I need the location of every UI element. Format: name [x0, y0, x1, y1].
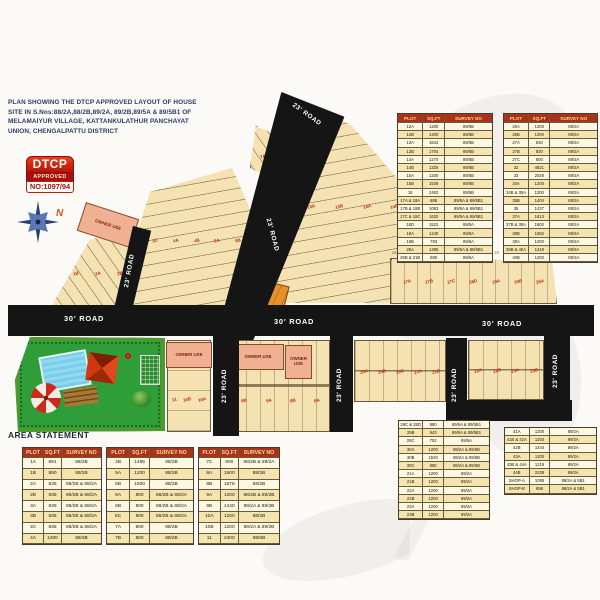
table-cell: 2238 [530, 469, 551, 477]
plot-number: 10A [198, 396, 207, 403]
table-cell: 13B [398, 148, 423, 156]
table-cell: 4821 [529, 164, 550, 172]
table-cell: 3B [23, 512, 44, 523]
table-cell: 800 [130, 490, 150, 501]
plot-number: 19A [491, 278, 500, 285]
column-header-plot: PLOT [107, 448, 130, 458]
table-cell: 800 [130, 512, 150, 523]
table-cell: 5B [107, 480, 130, 491]
table-cell: 88/2B [150, 523, 193, 534]
table-row: 1B89088/2B [23, 469, 101, 480]
table-cell: 838 [44, 523, 62, 534]
table-cell: 40B [504, 254, 529, 262]
table-cell: 1200 [423, 511, 444, 519]
table-cell: 1200 [529, 238, 550, 246]
table-row: 21B120089/2A [399, 478, 489, 486]
parasol-umbrella [31, 383, 61, 413]
table-cell: 89/2A [550, 139, 597, 147]
table-cell: 880 [423, 462, 444, 470]
table-row: 34A120089/2A [504, 180, 597, 188]
table-cell: 88/2B [62, 469, 101, 480]
table-cell: SHOP-B [505, 485, 530, 493]
garden-bush [132, 391, 151, 407]
table-cell: 1440 [221, 501, 239, 512]
park-benches [63, 386, 99, 408]
table-row: 2B83888/2B & 88/2A [23, 490, 101, 501]
table-cell: 89/5A [445, 254, 492, 262]
table-cell: 1200 [221, 490, 239, 501]
owner-use-plot-2: OWNER USE [166, 342, 212, 368]
table-header: PLOT SQ.FT SURVEY NO [398, 114, 492, 123]
table-cell: 89/5A [445, 238, 492, 246]
table-cell: 89/5A & 89/5B1 [445, 246, 492, 254]
title-line: SITE IN S.Nos:88/2A,88/2B,89/2A, 89/2B,8… [8, 108, 233, 118]
table-cell: 41B & 42A [505, 436, 530, 444]
table-row: 12B120089/5B [398, 131, 492, 139]
table-row: 19B78389/5A [398, 238, 492, 246]
plot-number: 1A [51, 270, 58, 276]
table-cell: 89/2A & 89/5B [444, 462, 489, 470]
table-row: 44B223889/2A [505, 469, 596, 477]
plot-block-south-4: 22A22B23A23B [468, 340, 544, 400]
table-cell: 89/2A & 89/2B [239, 501, 279, 512]
table-row: 27B83089/2A [504, 148, 597, 156]
table-cell: 14B [398, 164, 423, 172]
table-row: 4B148588/2B [107, 458, 193, 469]
dtcp-approved-badge: DTCP APPROVED NO:1097/94 [26, 156, 74, 193]
table-cell: 14A [398, 156, 423, 164]
table-cell: 1085 [530, 477, 551, 485]
table-cell: 39A [504, 238, 529, 246]
plot-number: 14A [362, 203, 371, 210]
table-cell: 1644 [423, 139, 445, 147]
owner-use-plot-3: OWNER USE [232, 344, 284, 370]
table-cell: 12B [398, 131, 423, 139]
plot-number: 22B [492, 367, 501, 374]
table-row: 22A120089/2A [399, 487, 489, 495]
table-cell: 23A [399, 503, 423, 511]
table-cell: 7B [107, 534, 130, 545]
plot-number: 20A [359, 368, 368, 375]
table-cell: 88/2B [239, 480, 279, 491]
table-cell: 1200 [423, 446, 444, 454]
table-cell: 1200 [423, 470, 444, 478]
table-cell: 25A [398, 246, 423, 254]
column-header-plot: PLOT [23, 448, 44, 458]
table-cell: 838 [44, 501, 62, 512]
table-cell: 37A [504, 213, 529, 221]
table-body: 28C & 28D88089/5A & 89/5B129B94389/5A & … [399, 421, 489, 519]
table-cell: 26A [504, 123, 529, 131]
table-row: 4A120088/2B [23, 534, 101, 545]
column-header-plot: PLOT [199, 448, 221, 458]
table-header: PLOT SQ.FT SURVEY NO [23, 448, 101, 458]
table-cell: 88/2B & 88/2A [150, 501, 193, 512]
table-row: 30B152089/2A & 89/5B [399, 454, 489, 462]
table-row: 1A89188/2B [23, 458, 101, 469]
plot-number: 8B [289, 397, 296, 403]
table-row: 8A150088/2B [199, 469, 279, 480]
table-cell: 89/5A & 89/5B1 [445, 213, 492, 221]
table-cell: 27A [504, 139, 529, 147]
table-row: 41A120089/2A [505, 428, 596, 436]
table-cell: 943 [423, 429, 444, 437]
column-header-sqft: SQ.FT [529, 114, 550, 123]
table-row: 26A120089/2A [504, 123, 597, 131]
table-cell: 898 [530, 485, 551, 493]
table-row: 37B & 38A160089/2A [504, 221, 597, 229]
table-cell: 1200 [529, 254, 550, 262]
plot-table-bottom-1: PLOT SQ.FT SURVEY NO 1A89188/2B1B89088/2… [22, 447, 102, 545]
table-cell: 12A [398, 123, 423, 131]
table-cell: 88/2B [150, 534, 193, 545]
column-header-survey: SURVEY NO [62, 448, 101, 458]
table-cell: 17A & 18A [398, 197, 423, 205]
table-cell: 36 [504, 205, 529, 213]
table-cell: 1500 [221, 469, 239, 480]
table-row: 7C80088/2B & 88/2A [199, 458, 279, 469]
table-row: 8B167888/2B [199, 480, 279, 491]
plot-number: 4B [193, 237, 200, 243]
table-cell: 89/2A & 89/5B [444, 446, 489, 454]
table-body: 1A89188/2B1B89088/2B2A83888/2B & 88/2A2B… [23, 458, 101, 544]
table-cell: 1385 [423, 246, 445, 254]
table-row: 43B & 44A121989/2A [505, 461, 596, 469]
table-cell: 3A [23, 501, 44, 512]
plot-number: 9B [241, 397, 248, 403]
table-cell: 30C [399, 462, 423, 470]
table-row: 12A120089/5B [398, 123, 492, 131]
table-cell: 89/2A [550, 172, 597, 180]
plot-number: 9A [265, 397, 272, 403]
table-cell: 89/2A [550, 164, 597, 172]
table-cell: 89/2A [550, 453, 596, 461]
road-label-23-v3: 23' ROAD [451, 340, 461, 430]
table-cell: 1200 [221, 523, 239, 534]
plot-number: 8A [314, 397, 321, 403]
plot-number: 25A [535, 278, 544, 285]
table-cell: 1485 [130, 458, 150, 469]
table-row: 6B80088/2B & 88/2A [107, 501, 193, 512]
table-cell: 1404 [529, 197, 550, 205]
table-cell: 8B [199, 480, 221, 491]
plot-number: 2A [95, 270, 102, 276]
table-cell: 6C [107, 512, 130, 523]
table-cell: 89/5B [445, 131, 492, 139]
table-cell: 88/2B & 88/2A [62, 512, 101, 523]
table-row: 17A & 18A88589/5A & 89/5B1 [398, 197, 492, 205]
table-cell: 1620 [423, 213, 445, 221]
table-cell: 880 [423, 421, 444, 429]
table-cell: 10A [199, 512, 221, 523]
table-body: 12A120089/5B12B120089/5B13A164489/5B13B1… [398, 123, 492, 262]
table-cell: 800 [130, 523, 150, 534]
road-label-23-v4: 23' ROAD [552, 326, 562, 416]
table-cell: 838 [44, 512, 62, 523]
table-cell: 44B [505, 469, 530, 477]
table-cell: 1325 [423, 164, 445, 172]
plan-title: PLAN SHOWING THE DTCP APPROVED LAYOUT OF… [8, 98, 233, 136]
table-cell: 89/2A [550, 229, 597, 237]
road-label-30-middle: 30' ROAD [274, 317, 314, 326]
table-row: 3C83888/2B & 88/2A [23, 523, 101, 534]
table-cell: 89/2A [550, 156, 597, 164]
table-cell: 23B [399, 511, 423, 519]
table-cell: 1204 [530, 436, 551, 444]
road-label-30-right: 30' ROAD [482, 319, 522, 328]
table-cell: 18D [398, 221, 423, 229]
owner-use-plot-4: OWNER USE [285, 345, 312, 379]
table-cell: 88/2B [150, 458, 193, 469]
table-row: 34B & 35A120089/2A [504, 189, 597, 197]
table-cell: 800 [529, 156, 550, 164]
plot-number: 23A [511, 367, 520, 374]
column-header-survey: SURVEY NO [445, 114, 492, 123]
table-cell: 1083 [423, 205, 445, 213]
plot-number: 5A [214, 237, 221, 243]
table-cell: 1678 [221, 480, 239, 491]
table-cell: 19B [398, 238, 423, 246]
plot-number: 20B [377, 368, 386, 375]
table-row: 6C80088/2B & 88/2A [107, 512, 193, 523]
table-cell: 89/2A [550, 461, 596, 469]
plot-number: 10B [183, 396, 192, 403]
table-cell: 88/2B & 88/2A [150, 512, 193, 523]
table-cell: 88/2B & 88/2A [62, 501, 101, 512]
table-row: 2A83888/2B & 88/2A [23, 480, 101, 491]
plot-table-top-right-2: PLOT SQ.FT SURVEY NO 26A120089/2A26B1200… [503, 113, 598, 263]
badge-approved-text: APPROVED [26, 173, 74, 181]
plot-block-south-3: 20A20B20C21A21B [354, 340, 446, 402]
title-line: PLAN SHOWING THE DTCP APPROVED LAYOUT OF… [8, 98, 233, 108]
table-cell: 1200 [44, 534, 62, 545]
table-cell: 15A [398, 172, 423, 180]
table-cell: 89/5B [445, 156, 492, 164]
table-cell: 28C & 28D [399, 421, 423, 429]
table-cell: 1200 [221, 512, 239, 523]
plot-table-bottom-2: PLOT SQ.FT SURVEY NO 4B148588/2B5A120088… [106, 447, 194, 545]
column-header-survey: SURVEY NO [150, 448, 193, 458]
table-cell: 89/5B [445, 148, 492, 156]
sports-court [140, 355, 160, 385]
table-cell: 800 [221, 458, 239, 469]
table-cell: 2A [23, 480, 44, 491]
table-cell: 830 [529, 139, 550, 147]
column-header-sqft: SQ.FT [130, 448, 150, 458]
table-cell: 89/5A & 89/5B1 [445, 205, 492, 213]
plot-table-bottom-right-1: 28C & 28D88089/5A & 89/5B129B94389/5A & … [398, 420, 490, 520]
table-cell: 13A [398, 139, 423, 147]
column-header-plot: PLOT [398, 114, 423, 123]
table-cell: 1219 [529, 246, 550, 254]
table-row: 35B140489/2A [504, 197, 597, 205]
table-cell: 88/2B & 88/2A [239, 458, 279, 469]
table-cell: 89/2A [550, 436, 596, 444]
play-pyramid [85, 352, 119, 384]
table-cell: 41A [505, 428, 530, 436]
table-row: 29B94389/5A & 89/5B1 [399, 429, 489, 437]
table-cell: 6A [107, 490, 130, 501]
table-row: 10A120088/2B [199, 512, 279, 523]
dimension-label: 23' [494, 251, 499, 255]
table-cell: 89/5A & 89/5B1 [444, 429, 489, 437]
table-cell: 89/2A [444, 487, 489, 495]
table-row: 37A181389/2A [504, 213, 597, 221]
table-cell: 89/2A [550, 131, 597, 139]
table-cell: 17B & 18B [398, 205, 423, 213]
table-row: 41B & 42A120489/2A [505, 436, 596, 444]
table-cell: 89/5B [445, 172, 492, 180]
table-cell: 89/2A [550, 238, 597, 246]
table-row: 38B158289/2A [504, 229, 597, 237]
table-row: 28C & 28D88089/5A & 89/5B1 [399, 421, 489, 429]
table-cell: 1600 [529, 221, 550, 229]
table-cell: 89/2A [550, 189, 597, 197]
table-cell: 30B [399, 454, 423, 462]
plot-number: 17C [447, 278, 456, 285]
table-cell: 89/2A [550, 428, 596, 436]
table-cell: 1200 [423, 478, 444, 486]
table-body: 41A120089/2A41B & 42A120489/2A42B144489/… [505, 428, 596, 494]
table-cell: 89/2A [550, 205, 597, 213]
table-cell: 89/2A [444, 495, 489, 503]
table-row: 23A120089/2A [399, 503, 489, 511]
plot-table-bottom-right-2: 41A120089/2A41B & 42A120489/2A42B144489/… [504, 427, 597, 495]
table-row: 39B & 40A121989/2A [504, 246, 597, 254]
table-cell: 89/2A [444, 470, 489, 478]
table-row: 39A120089/2A [504, 238, 597, 246]
table-cell: 1704 [423, 148, 445, 156]
table-cell: 783 [423, 238, 445, 246]
table-cell: 800 [130, 534, 150, 545]
table-row: 26B120089/2A [504, 131, 597, 139]
table-cell: 89/2A [550, 197, 597, 205]
table-cell: 88/2B [62, 534, 101, 545]
table-cell: 1219 [530, 461, 551, 469]
plot-number: 1B [73, 270, 80, 276]
column-header-sqft: SQ.FT [423, 114, 445, 123]
table-cell: 89/2A & 89/2B [239, 523, 279, 534]
plot-number: 17A [403, 278, 412, 285]
table-cell: 8A [199, 469, 221, 480]
table-cell: 11 [199, 534, 221, 545]
table-cell: 88/2B & 89/2B [239, 490, 279, 501]
table-row: 9A120088/2B & 89/2B [199, 490, 279, 501]
table-cell: 890 [44, 469, 62, 480]
table-cell: 1200 [529, 131, 550, 139]
plot-number: 3C [152, 237, 159, 243]
table-row: 9B144089/2A & 89/2B [199, 501, 279, 512]
table-cell: 88/2B [62, 458, 101, 469]
table-row: 25A138589/5A & 89/5B1 [398, 246, 492, 254]
table-row: 14B132589/5B [398, 164, 492, 172]
table-row: 13A164489/5B [398, 139, 492, 147]
table-cell: 1437 [529, 205, 550, 213]
table-row: SHOP-A108589/2A & 5B1 [505, 477, 596, 485]
table-cell: 1A [23, 458, 44, 469]
road-label-23-v2: 23' ROAD [336, 340, 346, 430]
table-cell: 4A [23, 534, 44, 545]
table-cell: 1240 [423, 229, 445, 237]
table-cell: 1200 [423, 487, 444, 495]
table-cell: 89/5B [445, 189, 492, 197]
table-cell: 1200 [529, 189, 550, 197]
plot-number: 5B [235, 237, 242, 243]
table-row: 23B120089/2A [399, 511, 489, 519]
table-cell: 89/5B [239, 534, 279, 545]
table-cell: 38B [504, 229, 529, 237]
table-cell: 25B & 21B [398, 254, 423, 262]
table-body: 26A120089/2A26B120089/2A27A83089/2A27B83… [504, 123, 597, 262]
compass-rose-icon [16, 200, 60, 244]
table-cell: 1200 [529, 180, 550, 188]
table-cell: 88/2B [150, 480, 193, 491]
table-cell: 1200 [530, 453, 551, 461]
table-cell: 880 [423, 254, 445, 262]
table-row: 27A83089/2A [504, 139, 597, 147]
flower-bed [125, 353, 131, 359]
table-cell: 3C [23, 523, 44, 534]
table-cell: 89/5A [445, 229, 492, 237]
table-row: 5B150088/2B [107, 480, 193, 491]
table-cell: 15B [398, 180, 423, 188]
table-cell: 88/2B [239, 469, 279, 480]
table-row: 7A80088/2B [107, 523, 193, 534]
table-cell: 29C [399, 437, 423, 445]
column-header-survey: SURVEY NO [550, 114, 597, 123]
table-cell: 89/2A [550, 444, 596, 452]
plot-number: 18D [469, 278, 478, 285]
layout-plan-canvas: PLAN SHOWING THE DTCP APPROVED LAYOUT OF… [0, 0, 600, 600]
table-cell: 2B [23, 490, 44, 501]
table-cell: 891 [44, 458, 62, 469]
table-row: 6A80088/2B & 88/2A [107, 490, 193, 501]
table-cell: 2400 [221, 534, 239, 545]
table-cell: 1270 [423, 156, 445, 164]
table-cell: 19A [398, 229, 423, 237]
table-cell: 1200 [529, 123, 550, 131]
table-cell: 21A [399, 470, 423, 478]
table-cell: 89/5A & 89/5B1 [444, 421, 489, 429]
plot-table-bottom-3: PLOT SQ.FT SURVEY NO 7C80088/2B & 88/2A8… [198, 447, 280, 545]
table-row: SHOP-B89889/2A & 5B1 [505, 485, 596, 493]
table-cell: 37B & 38A [504, 221, 529, 229]
table-cell: 21B [399, 478, 423, 486]
table-cell: 43B & 44A [505, 461, 530, 469]
table-cell: 33 [504, 172, 529, 180]
table-cell: 1582 [529, 229, 550, 237]
table-cell: 1200 [423, 172, 445, 180]
plot-number: 19B [513, 278, 522, 285]
table-cell: 89/2A [444, 503, 489, 511]
plot-number: 13B [334, 203, 343, 210]
table-cell: 89/5B [445, 123, 492, 131]
table-cell: 22A [399, 487, 423, 495]
column-header-sqft: SQ.FT [221, 448, 239, 458]
badge-dtcp-text: DTCP [26, 156, 74, 173]
spacer [390, 258, 392, 260]
table-row: 36143789/2A [504, 205, 597, 213]
table-row: 30A120089/2A & 89/5B [399, 446, 489, 454]
table-cell: 1522 [423, 221, 445, 229]
column-header-survey: SURVEY NO [239, 448, 279, 458]
table-cell: 39B & 40A [504, 246, 529, 254]
table-cell: 89/2A & 89/5B [444, 454, 489, 462]
table-row: 7B80088/2B [107, 534, 193, 545]
table-cell: 27B [504, 148, 529, 156]
table-cell: 885 [423, 197, 445, 205]
table-cell: 1200 [423, 495, 444, 503]
